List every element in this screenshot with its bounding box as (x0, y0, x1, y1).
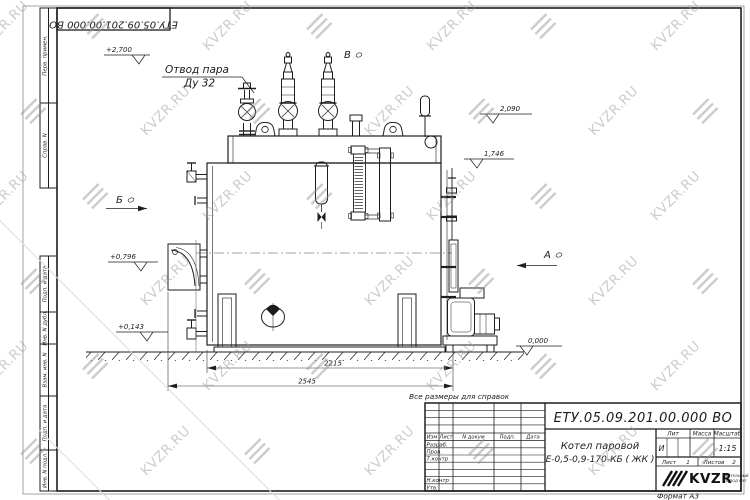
view-arrow-a (517, 263, 526, 268)
reference-note: Все размеры для справок (409, 392, 510, 401)
lit-label: Лит (666, 432, 679, 438)
water-level-gauge (349, 146, 394, 221)
sheets-value: 2 (732, 460, 736, 466)
level-probe (314, 162, 329, 229)
view-label-v: В (344, 50, 351, 61)
elevation-marks: +2,700 2,090 1,746 +0,796 +0,143 0,000 (104, 46, 562, 355)
view-sheet-ref-icon (355, 52, 362, 58)
steam-outlet-valve (238, 83, 256, 136)
row-razrab: Разраб. (427, 442, 448, 448)
company-sub2: ЗАВОД РЭП (725, 479, 747, 483)
elevation-0796: +0,796 (110, 253, 136, 261)
strip-label: Взам. инв. N (43, 352, 49, 387)
boiler-drawing (86, 53, 524, 362)
elevation-zero: 0,000 (528, 337, 549, 345)
format-label: Формат А3 (657, 492, 699, 500)
sheets-label: Листов (703, 460, 725, 466)
strip-label: Справ. N (43, 133, 49, 158)
lit-value: И (659, 444, 665, 453)
safety-valve (319, 53, 338, 137)
scale-value: 1:15 (719, 444, 737, 453)
view-arrow-b (138, 206, 147, 211)
dimensions: 2215 2545 (168, 292, 453, 391)
ground-line (86, 352, 524, 361)
company-sub1: КОТЕЛЬНЫЙ (725, 473, 749, 478)
title-block: ЕТУ.05.09.201.00.000 ВО Котел паровой Е-… (425, 403, 749, 491)
manhole (262, 303, 285, 331)
elevation-2090: 2,090 (500, 105, 521, 113)
fan-unit (443, 288, 500, 352)
elevation-0143: +0,143 (118, 323, 144, 331)
strip-label: Инв. N дубл. (43, 310, 49, 345)
strip-label: Инв. N подл. (43, 452, 49, 488)
safety-valve (279, 53, 298, 137)
row-prov: Пров. (427, 450, 443, 456)
front-fittings (168, 163, 207, 352)
view-sheet-ref-icon (127, 197, 134, 203)
lifting-lug (383, 123, 403, 137)
spring-logo-icon (663, 471, 687, 486)
view-label-a: А (543, 250, 551, 261)
steam-drum (228, 136, 441, 163)
product-title-line1: Котел паровой (561, 441, 640, 452)
col-list: Лист (438, 435, 453, 441)
scale-label: Масштаб (714, 432, 742, 438)
dim-inner: 2215 (324, 360, 342, 368)
support-legs (214, 294, 445, 352)
sheet-value: 1 (686, 460, 690, 466)
strip-label: Подп. и дата (43, 266, 49, 303)
boiler-body (207, 163, 441, 345)
col-data: Дата (525, 435, 539, 441)
col-podp: Подп. (500, 435, 516, 441)
col-ndocum: N докум (462, 435, 484, 441)
rear-panel (441, 168, 458, 340)
strip-label: Подп. и дата (43, 405, 49, 442)
callout-line2: Ду 32 (183, 78, 215, 90)
view-sheet-ref-icon (555, 252, 562, 258)
inverted-doc-number-box: ЕТУ.05.09.201.00.000 ВО (49, 8, 178, 30)
lifting-lug (255, 123, 275, 137)
row-utv: Утв. (427, 485, 438, 491)
row-nkontr: Н.контр (427, 478, 450, 484)
elevation-top: +2,700 (106, 46, 132, 54)
sheet-label: Лист (661, 460, 677, 466)
company-logo: KVZR КОТЕЛЬНЫЙ ЗАВОД РЭП (663, 471, 749, 487)
view-label-b: Б (116, 195, 123, 206)
mass-label: Масса (693, 432, 712, 438)
elevation-1746: 1,746 (484, 150, 505, 158)
manometer-siphon (419, 96, 437, 148)
dim-overall: 2545 (298, 378, 316, 386)
drawing-sheet: Перв. примен. Справ. N Подп. и дата Инв.… (0, 0, 750, 500)
strip-label: Перв. примен. (43, 35, 49, 75)
title-block-doc-number: ЕТУ.05.09.201.00.000 ВО (554, 411, 733, 426)
row-tkontr: Т.контр (427, 457, 449, 463)
col-izm: Изм (427, 435, 438, 441)
drum-stub-valve (350, 115, 362, 136)
drawing-svg: Перв. примен. Справ. N Подп. и дата Инв.… (0, 0, 750, 500)
inverted-doc-number: ЕТУ.05.09.201.00.000 ВО (49, 19, 178, 30)
callout-line1: Отвод пара (165, 64, 229, 76)
product-title-line2: Е-0,5-0,9-170-КБ ( ЖК ) (546, 455, 655, 465)
